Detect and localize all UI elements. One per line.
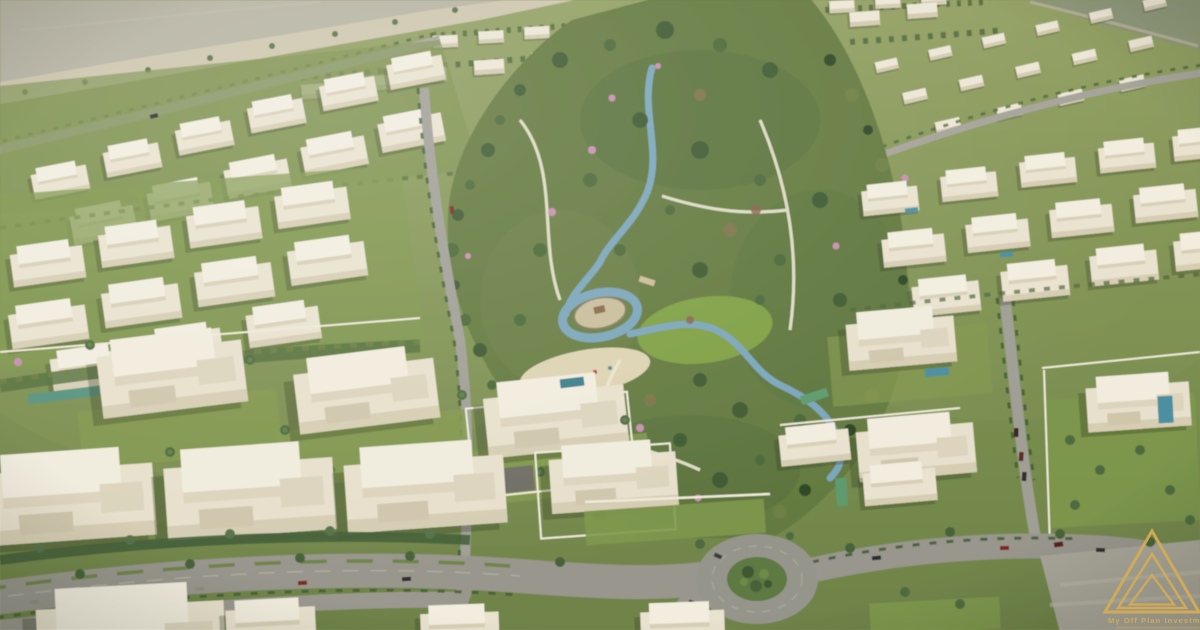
watermark-brand-text: My Off Plan Investment (1108, 616, 1200, 625)
masterplan-scene: My Off Plan Investment (0, 0, 1200, 630)
scene-art (0, 0, 1200, 630)
aerial-render: My Off Plan Investment (0, 0, 1200, 630)
watermark-tagline (1116, 627, 1200, 629)
vignette-overlay (0, 0, 1200, 630)
